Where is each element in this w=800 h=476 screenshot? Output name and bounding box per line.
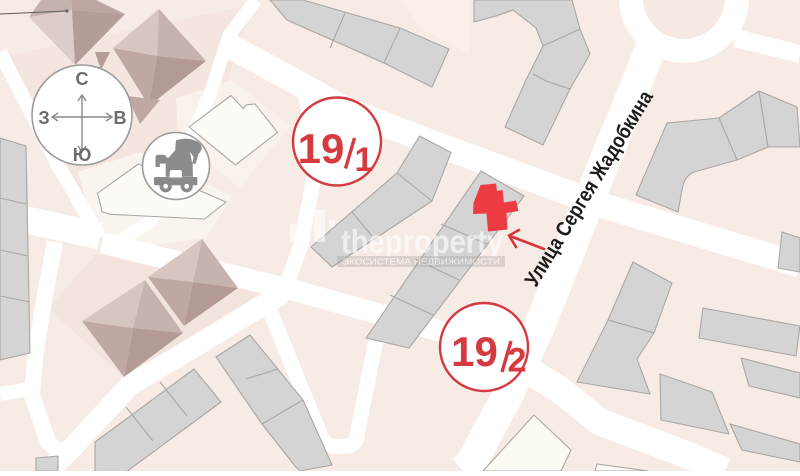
svg-text:1: 1: [355, 141, 374, 179]
svg-text:С: С: [76, 69, 89, 89]
svg-text:19: 19: [298, 125, 345, 172]
svg-text:2: 2: [508, 342, 527, 380]
svg-text:Ю: Ю: [73, 145, 92, 165]
svg-text:З: З: [38, 108, 49, 128]
svg-text:theproperty: theproperty: [341, 223, 504, 260]
svg-text:В: В: [114, 108, 127, 128]
svg-text:ЭКОСИСТЕМА НЕДВИЖИМОСТИ: ЭКОСИСТЕМА НЕДВИЖИМОСТИ: [342, 258, 500, 267]
svg-text:19: 19: [451, 328, 498, 375]
